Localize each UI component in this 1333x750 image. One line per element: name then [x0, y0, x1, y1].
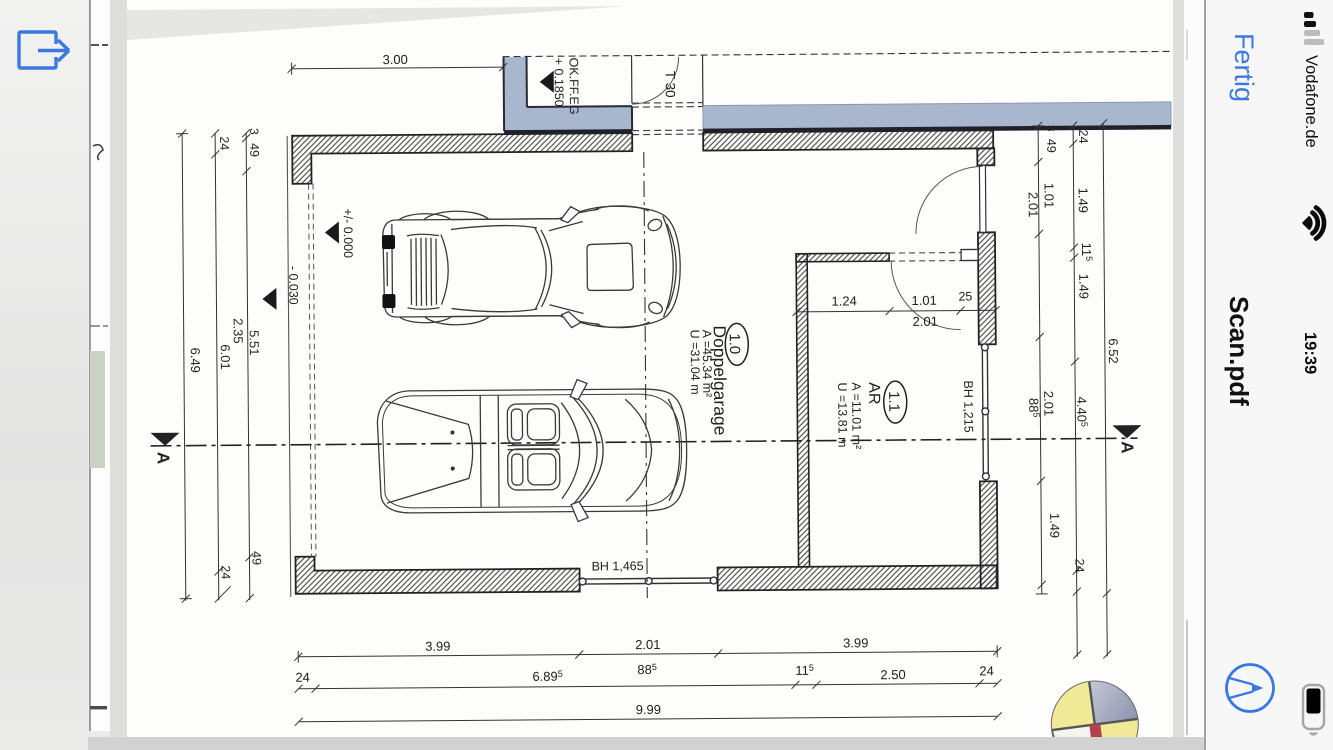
svg-text:2.50: 2.50: [880, 667, 905, 682]
svg-text:3: 3: [247, 128, 261, 135]
svg-text:24: 24: [1076, 130, 1090, 144]
svg-text:115: 115: [795, 663, 814, 678]
svg-text:+/- 0.000: +/- 0.000: [341, 208, 355, 258]
svg-text:BH 1,465: BH 1,465: [591, 559, 643, 573]
svg-text:885: 885: [1026, 398, 1041, 418]
svg-text:1.01: 1.01: [911, 293, 936, 308]
svg-text:BH 1,215: BH 1,215: [961, 380, 975, 432]
svg-text:1.49: 1.49: [1076, 188, 1091, 213]
svg-text:2.35: 2.35: [231, 318, 246, 343]
svg-text:1.49: 1.49: [1047, 513, 1062, 538]
svg-text:9.99: 9.99: [636, 702, 661, 717]
svg-text:2.01: 2.01: [1026, 192, 1041, 217]
svg-text:2.01: 2.01: [635, 637, 660, 652]
svg-text:A =11.01 m²: A =11.01 m²: [849, 382, 864, 449]
svg-text:25: 25: [958, 289, 972, 303]
svg-text:24: 24: [979, 663, 994, 678]
svg-text:A: A: [1118, 441, 1137, 453]
svg-text:24: 24: [1072, 559, 1086, 573]
svg-text:2.01: 2.01: [913, 314, 938, 329]
svg-text:3: 3: [1044, 125, 1058, 132]
svg-text:+ 0.1850: + 0.1850: [552, 58, 566, 107]
svg-text:U =13.81 m: U =13.81 m: [835, 382, 850, 447]
svg-text:49: 49: [247, 143, 261, 157]
svg-text:1.1: 1.1: [885, 391, 902, 412]
svg-text:3.99: 3.99: [425, 639, 450, 654]
svg-text:AR: AR: [865, 382, 882, 404]
svg-text:885: 885: [637, 662, 657, 677]
svg-text:3.99: 3.99: [843, 635, 868, 650]
svg-text:1.01: 1.01: [1042, 183, 1057, 208]
svg-text:1.24: 1.24: [831, 293, 856, 308]
svg-text:- 0.030: - 0.030: [286, 266, 300, 305]
svg-text:49: 49: [1044, 139, 1058, 153]
svg-text:OK.FF.EG: OK.FF.EG: [567, 58, 581, 115]
svg-text:3.00: 3.00: [382, 52, 407, 67]
svg-text:5.51: 5.51: [247, 330, 262, 355]
svg-text:24: 24: [295, 670, 310, 685]
svg-text:6.52: 6.52: [1106, 338, 1121, 363]
svg-text:T 30: T 30: [663, 71, 678, 98]
svg-text:2.01: 2.01: [1041, 391, 1056, 416]
svg-text:24: 24: [217, 136, 231, 150]
svg-text:49: 49: [249, 551, 263, 565]
svg-text:A: A: [154, 452, 173, 464]
svg-text:U =31.04 m: U =31.04 m: [688, 330, 703, 395]
svg-text:6.895: 6.895: [532, 669, 562, 684]
svg-text:1.49: 1.49: [1076, 274, 1091, 299]
svg-text:4.405: 4.405: [1074, 397, 1089, 427]
svg-text:115: 115: [1079, 243, 1094, 262]
svg-text:24: 24: [219, 565, 233, 579]
svg-text:6.01: 6.01: [218, 344, 233, 369]
svg-text:6.49: 6.49: [188, 348, 203, 373]
